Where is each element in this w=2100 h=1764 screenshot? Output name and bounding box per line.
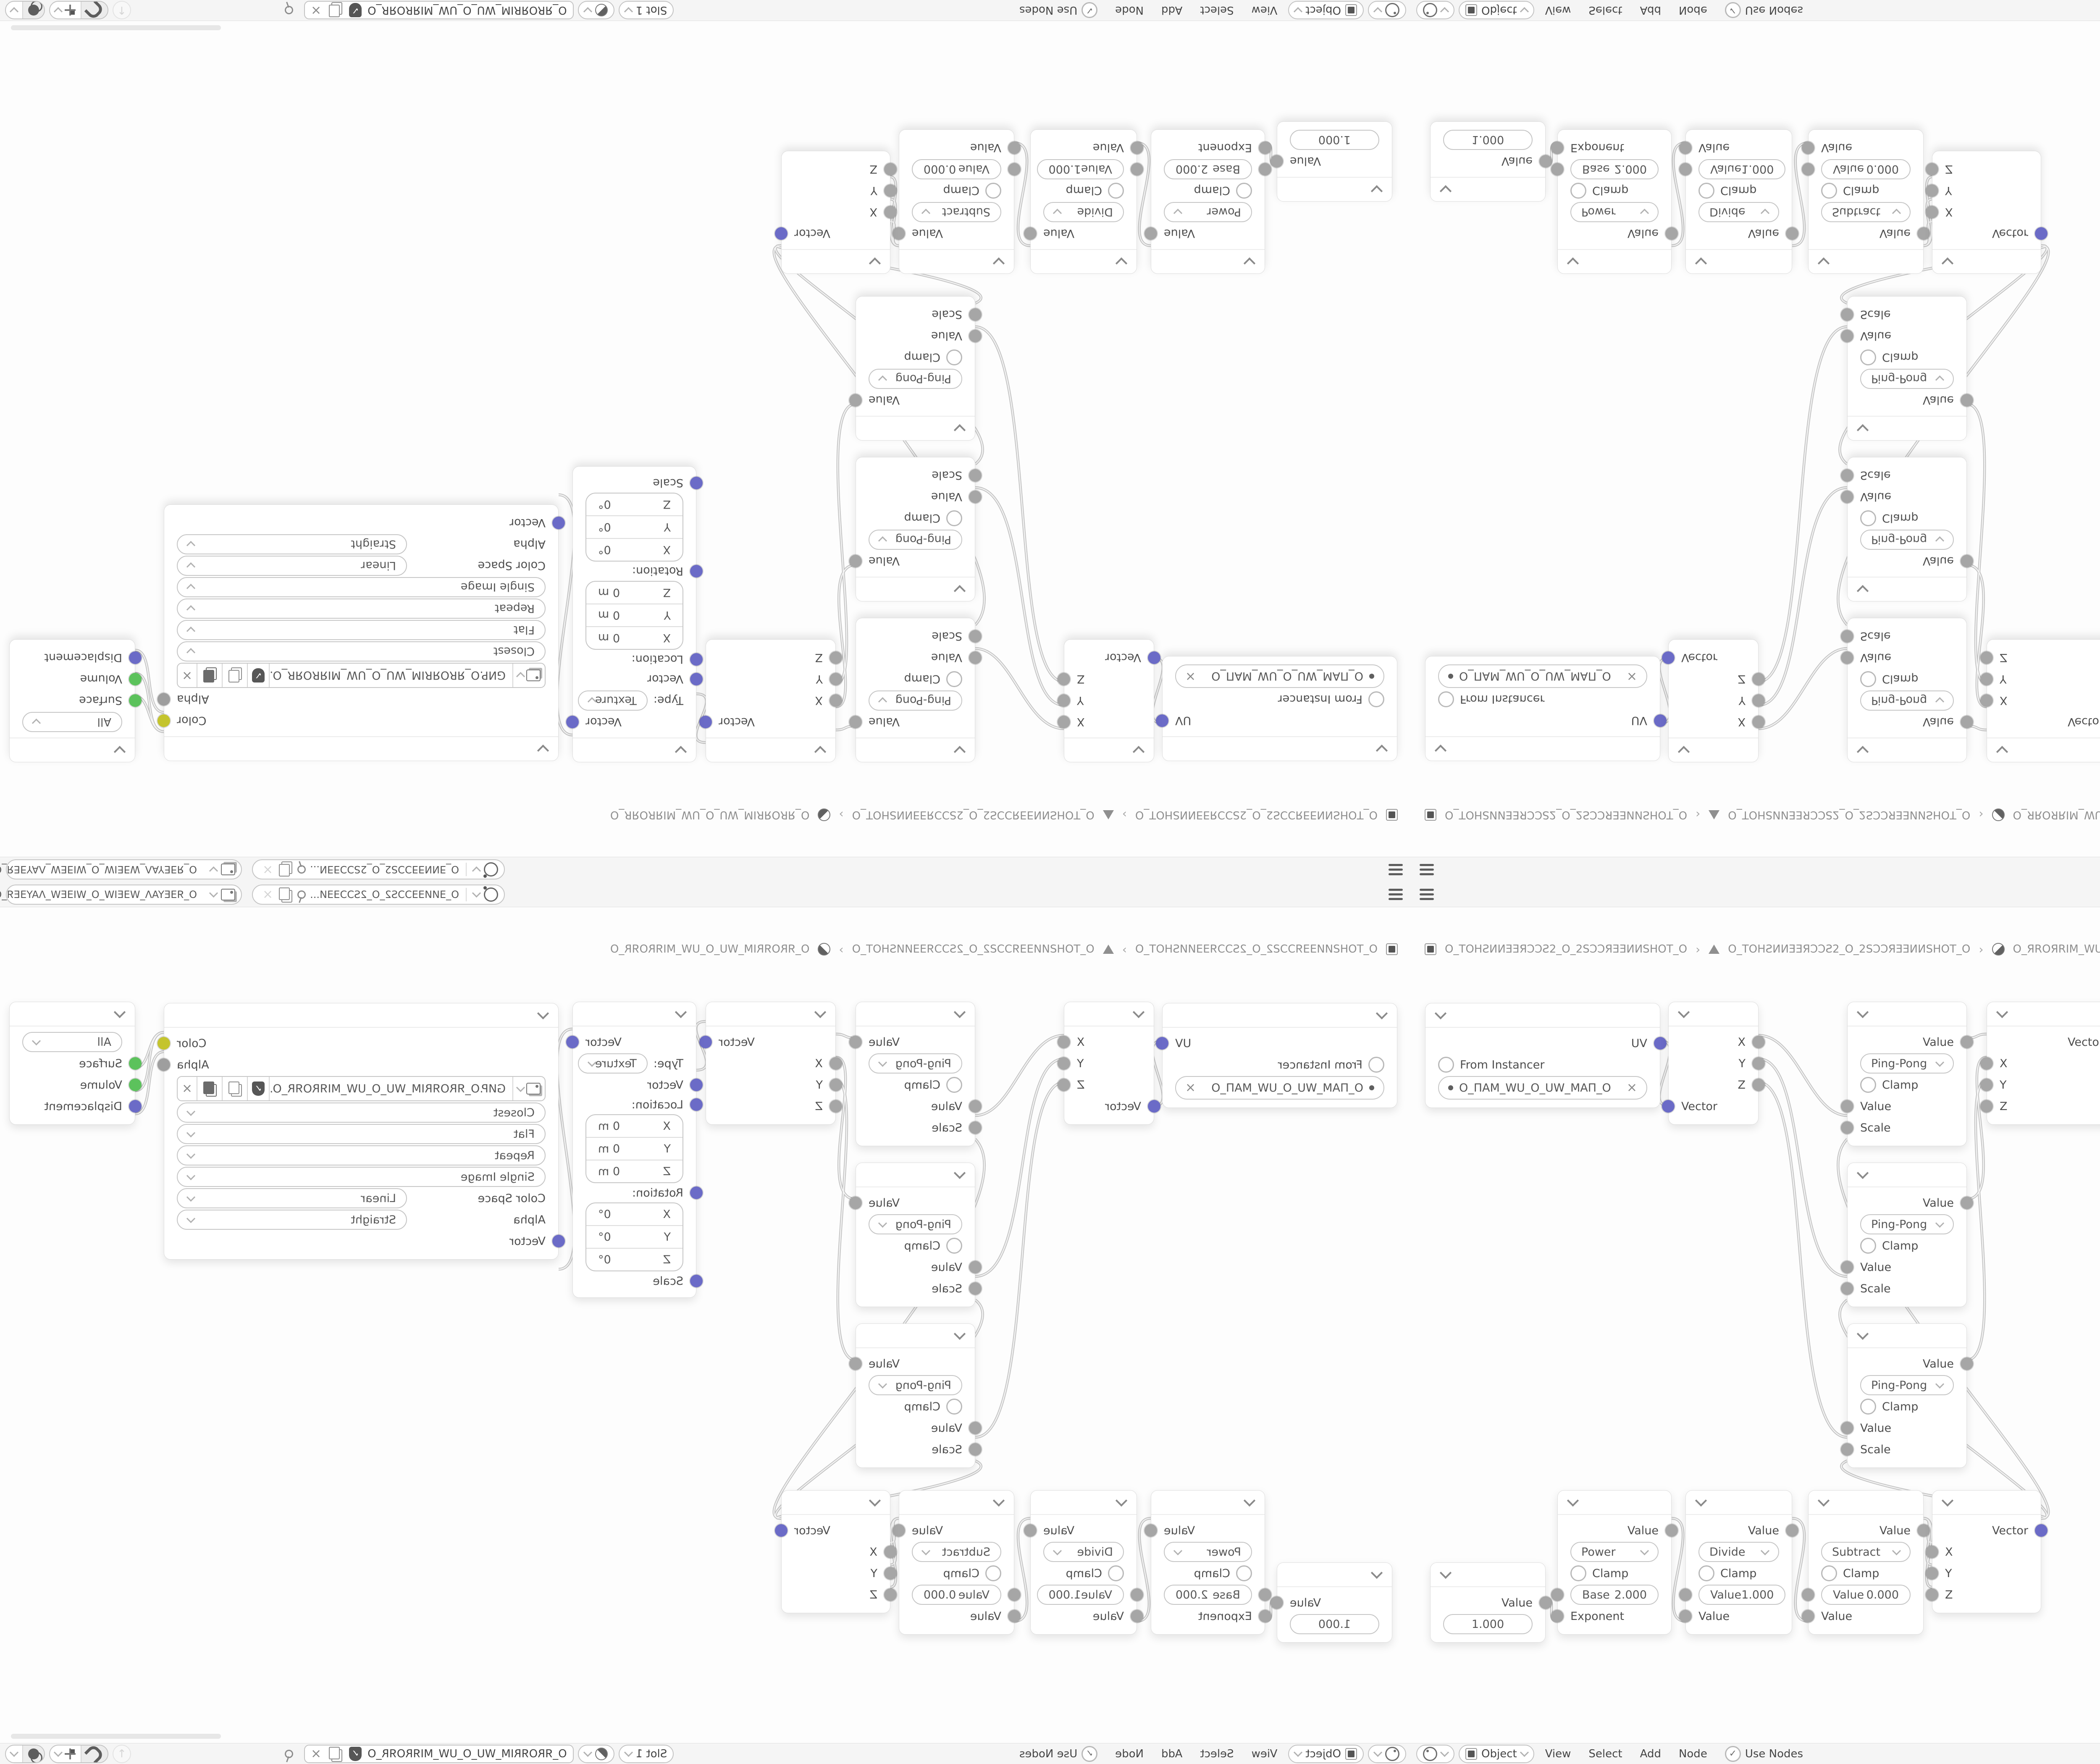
color-output-socket[interactable] <box>157 714 170 727</box>
node-header[interactable] <box>856 1002 975 1026</box>
checkbox[interactable] <box>1368 691 1384 707</box>
clamp-checkbox[interactable] <box>946 1238 962 1254</box>
y-output-socket[interactable] <box>1752 1057 1765 1070</box>
copy-icon[interactable] <box>329 1747 340 1759</box>
scale-input-socket[interactable] <box>690 1275 703 1287</box>
collapse-icon[interactable] <box>1116 257 1127 269</box>
volume-input-socket[interactable] <box>129 673 142 685</box>
collapse-icon[interactable] <box>537 1008 549 1019</box>
node-header[interactable] <box>1163 736 1397 761</box>
node-header[interactable] <box>1848 1163 1966 1187</box>
node-header[interactable] <box>856 738 975 762</box>
clamp-checkbox[interactable] <box>1698 183 1714 199</box>
math-pingpong-node[interactable]: Value Ping-Pong Clamp Value Scale <box>856 296 975 441</box>
value-output-socket[interactable] <box>849 1197 862 1209</box>
math-divide-node[interactable]: Value Divide Clamp Value1.000 Value <box>1685 1490 1792 1635</box>
scene-selector[interactable]: O_ƎИИƎƎƆƆS2_O_2SƆƆƎƎИ... × <box>252 885 505 905</box>
node-header[interactable] <box>573 738 696 762</box>
value-field[interactable]: Value0.000 <box>912 159 1001 179</box>
rotation-x-field[interactable]: X0° <box>586 1203 682 1225</box>
operation-dropdown[interactable]: Ping-Pong <box>869 369 962 389</box>
value-field[interactable]: 1.000 <box>1290 130 1379 150</box>
material-browse-button[interactable] <box>578 1745 614 1763</box>
image-selector[interactable]: GИP.O_ЯROЯRIM_WU_O_UW_MIЯROЯR_O.PNG ✓ × <box>177 1076 546 1101</box>
collapse-icon[interactable] <box>1440 185 1452 197</box>
y-input-socket[interactable] <box>1926 1567 1938 1580</box>
math-pingpong-node[interactable]: Value Ping-Pong Clamp Value Scale <box>1847 457 1967 601</box>
node-header[interactable] <box>1932 249 2041 273</box>
exponent-input-socket[interactable] <box>1259 142 1271 154</box>
clamp-checkbox[interactable] <box>1108 1565 1124 1581</box>
scale-input-socket[interactable] <box>1841 1121 1853 1134</box>
shield-icon[interactable]: ✓ <box>349 3 362 18</box>
node-header[interactable] <box>1431 177 1545 201</box>
shader-editor-canvas[interactable]: O_TOHƧИИƎƎЯƆƆƧ2_O_2SƆƆЯƎƎИИSHOT_O › O_TO… <box>0 907 1411 1743</box>
y-output-socket[interactable] <box>1058 694 1070 707</box>
clamp-checkbox[interactable] <box>1860 671 1876 687</box>
material-output-node[interactable]: All Surface Volume Displacement <box>9 1002 135 1125</box>
value-input-socket[interactable] <box>1679 1588 1692 1601</box>
node-header[interactable] <box>1686 1491 1792 1515</box>
mapping-node[interactable]: Vector Type: Texture Vector Location: X0… <box>572 1002 696 1298</box>
collapse-icon[interactable] <box>1567 257 1579 269</box>
x-input-socket[interactable] <box>1980 1057 1993 1070</box>
rotation-x-field[interactable]: X0° <box>586 539 682 561</box>
clamp-checkbox[interactable] <box>1860 1077 1876 1093</box>
node-header[interactable] <box>1686 249 1792 273</box>
view-layer-selector[interactable]: O_ЯƎEYAΛ_WƎEIW_O_WIƎEW_ΛAYƎEЯ_O × <box>6 885 242 905</box>
use-nodes-checkbox[interactable]: ✓ Use Nodes <box>1019 3 1097 18</box>
operation-dropdown[interactable]: Power <box>1164 1542 1252 1562</box>
node-header[interactable] <box>164 736 558 761</box>
collapse-icon[interactable] <box>1244 257 1255 269</box>
value-input-socket[interactable] <box>1802 1588 1814 1601</box>
base-field[interactable]: Base2.000 <box>1570 1585 1659 1605</box>
collapse-icon[interactable] <box>537 745 549 756</box>
value2-input-socket[interactable] <box>1008 1610 1021 1622</box>
operation-dropdown[interactable]: Ping-Pong <box>1860 690 1954 711</box>
clamp-checkbox[interactable] <box>985 1565 1001 1581</box>
clamp-checkbox[interactable] <box>946 510 962 526</box>
value-node[interactable]: Value 1.000 <box>1430 121 1546 202</box>
use-nodes-checkbox[interactable]: ✓ Use Nodes <box>1725 3 1803 18</box>
scale-input-socket[interactable] <box>690 477 703 489</box>
math-divide-node[interactable]: Value Divide Clamp Value1.000 Value <box>1030 1490 1137 1635</box>
vector-input-socket[interactable] <box>1148 1100 1160 1113</box>
shield-icon[interactable]: ✓ <box>349 1747 362 1761</box>
image-browse-button[interactable] <box>513 664 545 687</box>
unlink-button[interactable]: × <box>178 664 197 687</box>
collapse-icon[interactable] <box>1996 746 2008 758</box>
menu-add[interactable]: Add <box>1161 1748 1182 1760</box>
new-image-button[interactable] <box>223 1077 248 1100</box>
node-tree-name-field[interactable]: O_ЯROЯRIM_WU_O_UW_MIЯROЯR_O ✓ × <box>304 1 574 20</box>
clamp-checkbox[interactable] <box>1860 1399 1876 1415</box>
node-header[interactable] <box>782 249 890 273</box>
menu-view[interactable]: View <box>1545 1748 1571 1760</box>
value-output-socket[interactable] <box>849 1036 862 1048</box>
menu-view[interactable]: View <box>1545 4 1571 17</box>
base-input-socket[interactable] <box>1551 1588 1564 1601</box>
snap-mode-dropdown[interactable] <box>50 1746 81 1762</box>
clamp-checkbox[interactable] <box>1570 183 1586 199</box>
node-header[interactable] <box>1425 1003 1660 1028</box>
node-header[interactable] <box>1848 577 1966 601</box>
snap-mode-dropdown[interactable] <box>50 2 81 19</box>
x-input-socket[interactable] <box>1926 206 1938 218</box>
vector-output-socket[interactable] <box>699 716 712 728</box>
uv-map-name-field[interactable]: O_ПAM_WU_O_UW_MAП_O × <box>1438 1076 1647 1100</box>
value-field[interactable]: 1.000 <box>1443 130 1533 150</box>
scale-input-socket[interactable] <box>969 1443 982 1456</box>
value-output-socket[interactable] <box>1024 227 1037 240</box>
menu-node[interactable]: Node <box>1679 1748 1707 1760</box>
collapse-icon[interactable] <box>114 746 126 758</box>
value-output-socket[interactable] <box>1786 227 1798 240</box>
menu-node[interactable]: Node <box>1115 1748 1144 1760</box>
collapsed-menus-icon[interactable] <box>1420 864 1434 875</box>
value-output-socket[interactable] <box>1144 1524 1157 1537</box>
mapping-type-dropdown[interactable]: Texture <box>578 1053 648 1074</box>
node-header[interactable] <box>706 738 835 762</box>
vector-input-socket[interactable] <box>552 1235 565 1247</box>
value-output-socket[interactable] <box>1961 394 1973 407</box>
scene-name[interactable]: O_ƎИИƎƎƆƆS2_O_2SƆƆƎƎИ... <box>310 864 459 876</box>
fake-user-button[interactable]: ✓ <box>248 664 270 687</box>
interpolation-dropdown[interactable]: Closest <box>177 1102 546 1123</box>
node-header[interactable] <box>1031 249 1137 273</box>
rotation-fields[interactable]: X0° Y0° Z0° <box>585 1202 683 1271</box>
uv-map-name-field[interactable]: O_ПAM_WU_O_UW_MAП_O × <box>1175 1076 1384 1100</box>
scene-selector[interactable]: O_ƎИИƎƎƆƆS2_O_2SƆƆƎƎИ... × <box>252 860 505 880</box>
combine-xyz-node[interactable]: Vector X Y Z <box>706 1002 836 1125</box>
combine-xyz-node[interactable]: Vector X Y Z <box>781 1490 890 1613</box>
node-header[interactable] <box>1669 1002 1758 1026</box>
node-header[interactable] <box>1848 738 1966 762</box>
value-input-socket[interactable] <box>969 1261 982 1273</box>
collapse-icon[interactable] <box>1244 1495 1255 1507</box>
location-fields[interactable]: X0 m Y0 m Z0 m <box>585 1114 683 1183</box>
collapse-icon[interactable] <box>954 585 966 597</box>
rotation-input-socket[interactable] <box>690 1186 703 1199</box>
exponent-input-socket[interactable] <box>1551 142 1564 154</box>
source-dropdown[interactable]: Single Image <box>177 1167 546 1187</box>
collapse-icon[interactable] <box>954 1167 966 1179</box>
target-dropdown[interactable]: All <box>22 712 122 732</box>
collapse-icon[interactable] <box>1818 257 1830 269</box>
operation-dropdown[interactable]: Subtract <box>912 1542 1001 1562</box>
math-power-node[interactable]: Value Power Clamp Base2.000 Exponent <box>1151 1490 1265 1635</box>
surface-input-socket[interactable] <box>129 694 142 707</box>
scale-input-socket[interactable] <box>969 308 982 321</box>
x-input-socket[interactable] <box>884 206 897 218</box>
shader-mode-dropdown[interactable]: Object <box>1459 1 1534 20</box>
snap-toggle[interactable] <box>81 2 108 19</box>
value-field[interactable]: Value0.000 <box>912 1585 1001 1605</box>
node-header[interactable] <box>856 416 975 440</box>
combine-xyz-node[interactable]: Vector X Y Z <box>706 639 836 762</box>
location-fields[interactable]: X0 m Y0 m Z0 m <box>585 581 683 650</box>
y-output-socket[interactable] <box>1058 1057 1070 1070</box>
value2-input-socket[interactable] <box>1008 142 1021 154</box>
location-z-field[interactable]: Z0 m <box>586 582 682 604</box>
collapse-icon[interactable] <box>954 746 966 758</box>
node-header[interactable] <box>782 1491 890 1515</box>
node-header[interactable] <box>899 1491 1014 1515</box>
overlays-dropdown[interactable] <box>6 1746 23 1762</box>
uv-map-name[interactable]: O_ПAM_WU_O_UW_MAП_O <box>1196 1081 1363 1095</box>
use-nodes-checkbox[interactable]: ✓ Use Nodes <box>1019 1746 1097 1762</box>
node-header[interactable] <box>1151 1491 1265 1515</box>
node-header[interactable] <box>899 249 1014 273</box>
menu-select[interactable]: Select <box>1200 1748 1234 1760</box>
node-header[interactable] <box>10 1002 135 1026</box>
operation-dropdown[interactable]: Divide <box>1043 202 1124 222</box>
collapse-icon[interactable] <box>1376 745 1388 756</box>
base-input-socket[interactable] <box>1259 1588 1271 1601</box>
node-header[interactable] <box>1848 1002 1966 1026</box>
separate-xyz-node[interactable]: X Y Z Vector <box>1064 639 1154 762</box>
mapping-type-dropdown[interactable]: Texture <box>578 690 648 711</box>
value-output-socket[interactable] <box>1961 555 1973 567</box>
x-output-socket[interactable] <box>1058 716 1070 728</box>
x-input-socket[interactable] <box>884 1546 897 1558</box>
collapse-icon[interactable] <box>1133 746 1144 758</box>
menu-select[interactable]: Select <box>1588 4 1622 17</box>
x-input-socket[interactable] <box>1926 1546 1938 1558</box>
value-input-socket[interactable] <box>1131 163 1143 176</box>
value-node[interactable]: Value 1.000 <box>1277 1562 1392 1643</box>
node-header[interactable] <box>1987 1002 2100 1026</box>
menu-view[interactable]: View <box>1252 4 1278 17</box>
x-output-socket[interactable] <box>1058 1036 1070 1048</box>
collapse-icon[interactable] <box>814 746 826 758</box>
menu-node[interactable]: Node <box>1679 4 1707 17</box>
value-field[interactable]: Value1.000 <box>1037 159 1124 179</box>
collapse-icon[interactable] <box>869 257 881 269</box>
scale-input-socket[interactable] <box>1841 308 1853 321</box>
overlays-toggle[interactable] <box>23 1746 44 1762</box>
value-output-socket[interactable] <box>849 1357 862 1370</box>
operation-dropdown[interactable]: Divide <box>1698 202 1779 222</box>
unpack-button[interactable] <box>197 664 223 687</box>
node-header[interactable] <box>10 738 135 762</box>
collapse-icon[interactable] <box>1996 1006 2008 1018</box>
value2-input-socket[interactable] <box>1679 1610 1692 1622</box>
node-header[interactable] <box>573 1002 696 1026</box>
rotation-input-socket[interactable] <box>690 565 703 577</box>
close-icon[interactable]: × <box>311 1748 321 1760</box>
shader-mode-dropdown[interactable]: Object <box>1288 1745 1364 1763</box>
value2-input-socket[interactable] <box>1679 142 1692 154</box>
value-output-socket[interactable] <box>1270 155 1283 168</box>
collapse-icon[interactable] <box>1857 585 1869 597</box>
combine-xyz-node[interactable]: Vector X Y Z <box>1932 1490 2041 1613</box>
clamp-checkbox[interactable] <box>946 349 962 365</box>
snap-toggle[interactable] <box>81 1746 108 1762</box>
collapsed-menus-icon[interactable] <box>1420 889 1434 900</box>
vector-output-socket[interactable] <box>566 716 579 728</box>
operation-dropdown[interactable]: Ping-Pong <box>1860 530 1954 550</box>
base-input-socket[interactable] <box>1259 163 1271 176</box>
value-input-socket[interactable] <box>1679 163 1692 176</box>
collapse-icon[interactable] <box>1857 746 1869 758</box>
value-input-socket[interactable] <box>1841 1422 1853 1434</box>
node-header[interactable] <box>1809 1491 1923 1515</box>
z-input-socket[interactable] <box>884 1588 897 1601</box>
base-input-socket[interactable] <box>1551 163 1564 176</box>
collapse-icon[interactable] <box>954 424 966 436</box>
node-header[interactable] <box>856 577 975 601</box>
displacement-input-socket[interactable] <box>129 1100 142 1113</box>
fake-user-button[interactable]: ✓ <box>248 1077 270 1100</box>
close-icon[interactable]: × <box>262 888 273 901</box>
location-x-field[interactable]: X0 m <box>586 627 682 649</box>
clamp-checkbox[interactable] <box>985 183 1001 199</box>
node-header[interactable] <box>1425 736 1660 761</box>
scale-input-socket[interactable] <box>969 1121 982 1134</box>
node-header[interactable] <box>1277 1563 1392 1587</box>
math-pingpong-node[interactable]: Value Ping-Pong Clamp Value Scale <box>856 1323 975 1468</box>
color-space-dropdown[interactable]: Linear <box>177 556 407 576</box>
node-tree-name[interactable]: O_ЯROЯRIM_WU_O_UW_MIЯROЯR_O <box>367 1748 567 1760</box>
copy-icon[interactable] <box>329 5 340 18</box>
uv-map-name-field[interactable]: O_ПAM_WU_O_UW_MAП_O × <box>1438 664 1647 688</box>
overlays-toggle[interactable] <box>23 2 44 19</box>
image-texture-node[interactable]: Color Alpha GИP.O_ЯROЯRIM_WU_O_UW_MIЯROЯ… <box>164 1003 559 1260</box>
base-field[interactable]: Base2.000 <box>1164 159 1252 179</box>
shader-editor-canvas[interactable]: O_TOHƧИИƎƎЯƆƆƧ2_O_2SƆƆЯƎƎИИSHOT_O › O_TO… <box>0 21 1411 857</box>
z-input-socket[interactable] <box>829 651 842 664</box>
alpha-output-socket[interactable] <box>157 1058 170 1071</box>
clear-icon[interactable]: × <box>1627 670 1637 682</box>
node-header[interactable] <box>1848 416 1966 440</box>
value-output-socket[interactable] <box>1786 1524 1798 1537</box>
clear-icon[interactable]: × <box>1627 1081 1637 1094</box>
separate-xyz-node[interactable]: X Y Z Vector <box>1668 639 1759 762</box>
value-field[interactable]: 1.000 <box>1290 1614 1379 1634</box>
material-browse-button[interactable] <box>578 1 614 20</box>
copy-icon[interactable] <box>279 864 290 877</box>
uv-map-name[interactable]: O_ПAM_WU_O_UW_MAП_O <box>1196 670 1363 683</box>
value2-input-socket[interactable] <box>1131 142 1143 154</box>
scale-input-socket[interactable] <box>969 630 982 643</box>
value-input-socket[interactable] <box>1841 491 1853 503</box>
rotation-z-field[interactable]: Z0° <box>586 1248 682 1270</box>
collapse-icon[interactable] <box>1435 745 1446 756</box>
math-pingpong-node[interactable]: Value Ping-Pong Clamp Value Scale <box>1847 618 1967 762</box>
value-input-socket[interactable] <box>969 491 982 503</box>
z-output-socket[interactable] <box>1058 673 1070 685</box>
uv-map-name[interactable]: O_ПAM_WU_O_UW_MAП_O <box>1459 670 1627 683</box>
math-subtract-node[interactable]: Value Subtract Clamp Value0.000 Value <box>1808 129 1924 274</box>
math-pingpong-node[interactable]: Value Ping-Pong Clamp Value Scale <box>856 618 975 762</box>
node-header[interactable] <box>1848 1324 1966 1348</box>
operation-dropdown[interactable]: Ping-Pong <box>1860 1214 1954 1234</box>
go-to-parent-button[interactable]: ↑ <box>113 1 131 20</box>
z-input-socket[interactable] <box>1926 1588 1938 1601</box>
value-field[interactable]: Value1.000 <box>1698 159 1785 179</box>
value-input-socket[interactable] <box>1008 163 1021 176</box>
vector-input-socket[interactable] <box>690 673 703 685</box>
value-output-socket[interactable] <box>892 227 905 240</box>
collapse-icon[interactable] <box>954 1006 966 1018</box>
pin-icon[interactable] <box>283 1748 294 1759</box>
clamp-checkbox[interactable] <box>1821 183 1837 199</box>
node-header[interactable] <box>1151 249 1265 273</box>
scale-input-socket[interactable] <box>1841 1282 1853 1295</box>
value-input-socket[interactable] <box>1841 651 1853 664</box>
math-pingpong-node[interactable]: Value Ping-Pong Clamp Value Scale <box>1847 1163 1967 1307</box>
x-output-socket[interactable] <box>1752 1036 1765 1048</box>
value-output-socket[interactable] <box>1961 1357 1973 1370</box>
overlays-dropdown[interactable] <box>6 2 23 19</box>
menu-add[interactable]: Add <box>1640 4 1661 17</box>
operation-dropdown[interactable]: Divide <box>1043 1542 1124 1562</box>
rotation-y-field[interactable]: Y0° <box>586 1225 682 1248</box>
value-output-socket[interactable] <box>1917 227 1930 240</box>
clamp-checkbox[interactable] <box>1698 1565 1714 1581</box>
clamp-checkbox[interactable] <box>1236 1565 1252 1581</box>
operation-dropdown[interactable]: Divide <box>1698 1542 1779 1562</box>
node-header[interactable] <box>1431 1563 1545 1587</box>
collapse-icon[interactable] <box>1942 1495 1953 1507</box>
value-input-socket[interactable] <box>969 651 982 664</box>
scale-input-socket[interactable] <box>969 469 982 482</box>
checkbox[interactable] <box>1368 1057 1384 1073</box>
displacement-input-socket[interactable] <box>129 651 142 664</box>
uv-output-socket[interactable] <box>1156 1037 1168 1050</box>
view-layer-name[interactable]: O_ЯƎEYAΛ_WƎEIW_O_WIƎEW_ΛAYƎEЯ_O <box>0 889 197 900</box>
collapsed-menus-icon[interactable] <box>1389 864 1403 875</box>
collapse-icon[interactable] <box>954 1328 966 1340</box>
collapse-icon[interactable] <box>1678 1006 1690 1018</box>
clamp-checkbox[interactable] <box>946 671 962 687</box>
clamp-checkbox[interactable] <box>1860 1238 1876 1254</box>
math-power-node[interactable]: Value Power Clamp Base2.000 Exponent <box>1151 129 1265 274</box>
value-output-socket[interactable] <box>1665 227 1678 240</box>
value-field[interactable]: Value0.000 <box>1821 1585 1911 1605</box>
y-input-socket[interactable] <box>829 673 842 685</box>
location-y-field[interactable]: Y0 m <box>586 604 682 627</box>
copy-icon[interactable] <box>279 887 290 900</box>
value-output-socket[interactable] <box>1961 1197 1973 1209</box>
value-input-socket[interactable] <box>969 1100 982 1113</box>
rotation-fields[interactable]: X0° Y0° Z0° <box>585 493 683 562</box>
operation-dropdown[interactable]: Ping-Pong <box>869 1214 962 1234</box>
operation-dropdown[interactable]: Power <box>1570 202 1659 222</box>
collapse-icon[interactable] <box>675 1006 687 1018</box>
projection-dropdown[interactable]: Flat <box>177 1124 546 1144</box>
value-output-socket[interactable] <box>1024 1524 1037 1537</box>
extension-dropdown[interactable]: Repeat <box>177 1145 546 1165</box>
value-node[interactable]: Value 1.000 <box>1430 1562 1546 1643</box>
value-output-socket[interactable] <box>892 1524 905 1537</box>
image-selector[interactable]: GИP.O_ЯROЯRIM_WU_O_UW_MIЯROЯR_O.PNG ✓ × <box>177 663 546 688</box>
pin-icon[interactable] <box>283 5 294 16</box>
y-input-socket[interactable] <box>829 1079 842 1091</box>
value-field[interactable]: 1.000 <box>1443 1614 1533 1634</box>
uv-output-socket[interactable] <box>1654 1037 1667 1050</box>
collapse-icon[interactable] <box>993 1495 1005 1507</box>
value-output-socket[interactable] <box>1961 716 1973 728</box>
unlink-button[interactable]: × <box>178 1077 197 1100</box>
uv-output-socket[interactable] <box>1156 714 1168 727</box>
view-layer-name[interactable]: O_ЯƎEYAΛ_WƎEIW_O_WIƎEW_ΛAYƎEЯ_O <box>0 864 197 876</box>
z-input-socket[interactable] <box>829 1100 842 1113</box>
node-header[interactable] <box>1031 1491 1137 1515</box>
value2-input-socket[interactable] <box>1802 142 1814 154</box>
